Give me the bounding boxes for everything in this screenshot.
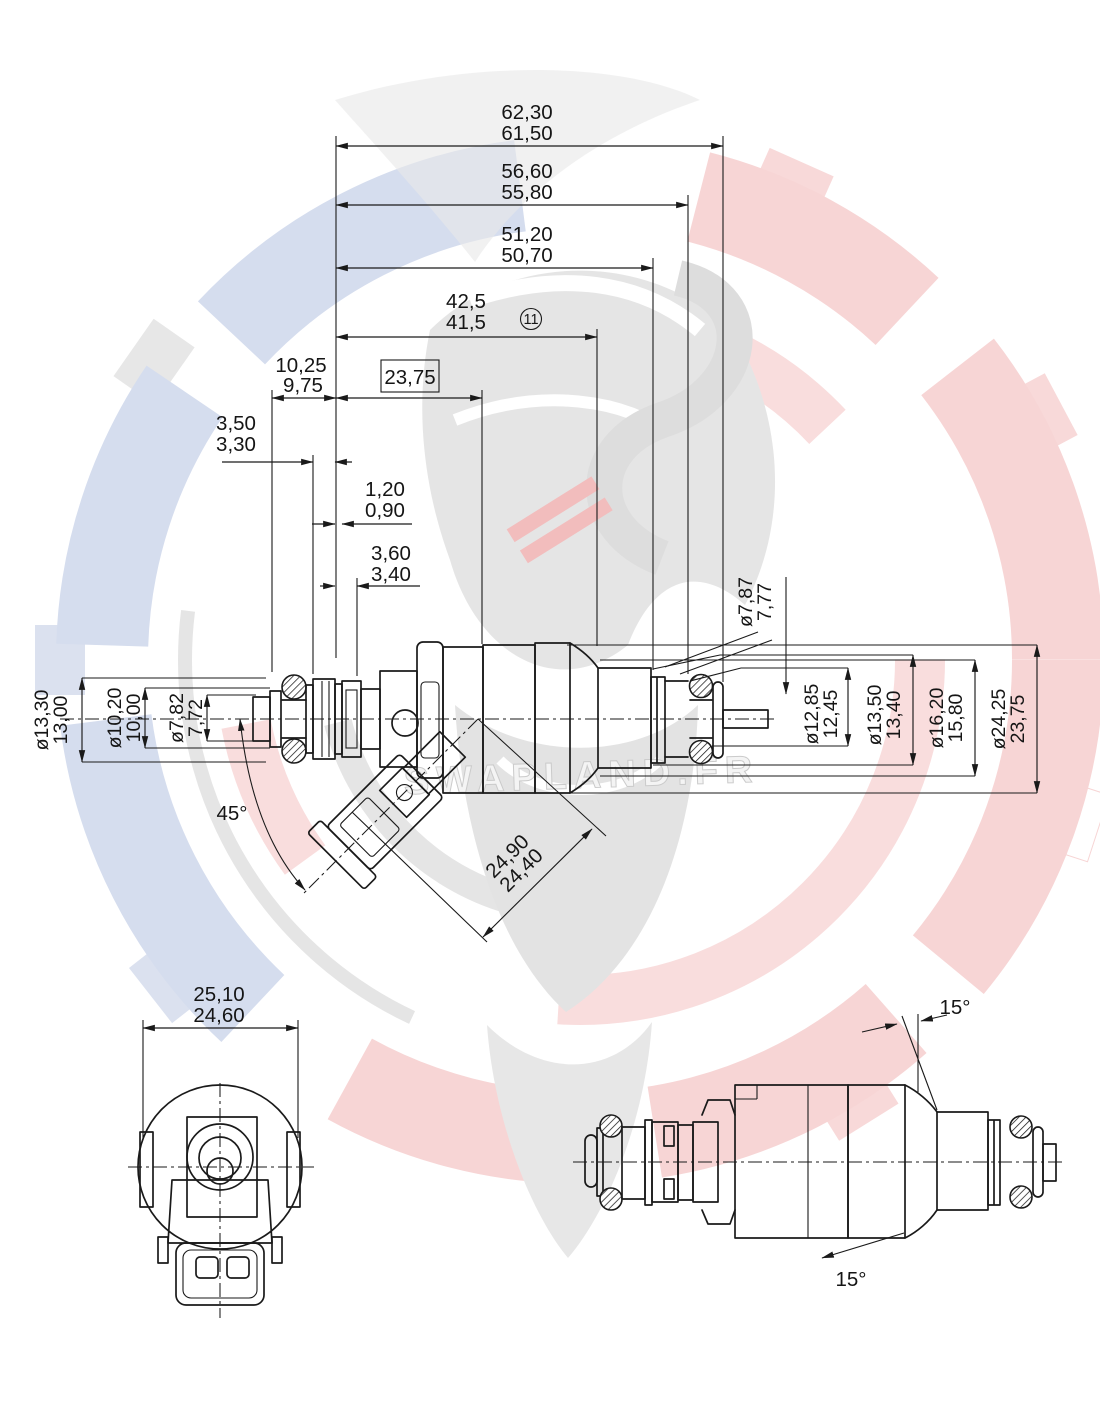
dim-angle-value: 45° — [216, 802, 247, 825]
o-ring-seal — [1010, 1186, 1032, 1208]
o-ring-seal — [282, 675, 306, 699]
dim-neck-min: 15,80 — [945, 693, 967, 742]
o-ring-seal — [1010, 1116, 1032, 1138]
o-ring-seal — [690, 741, 713, 764]
dim-groove-max: 3,60 — [371, 542, 411, 565]
dim-tip-min: 7,72 — [185, 699, 207, 737]
dim-groove-min: 3,40 — [371, 563, 411, 586]
dim-washer-min: 0,90 — [365, 499, 405, 522]
dim-collar-min: 13,40 — [883, 690, 905, 739]
o-ring-seal — [600, 1115, 622, 1137]
dim-washer-max: 1,20 — [365, 478, 405, 501]
dim-cap-min: 13,00 — [50, 695, 72, 744]
dim-len3-max: 51,20 — [501, 223, 552, 246]
dim-len2-max: 56,60 — [501, 160, 552, 183]
dim-len3-min: 50,70 — [501, 244, 552, 267]
dim-len4-min: 41,5 — [446, 311, 486, 334]
dim-frontw-min: 24,60 — [193, 1004, 244, 1027]
dim-overall-max: 62,30 — [501, 101, 552, 124]
dim-frontw-max: 25,10 — [193, 983, 244, 1006]
dim-mid-min: 10,00 — [123, 693, 145, 742]
dim-flange-min: 3,30 — [216, 433, 256, 456]
dim-len2-min: 55,80 — [501, 181, 552, 204]
technical-drawing-canvas: SWAPLAND.FR — [0, 0, 1100, 1422]
o-ring-seal — [282, 739, 306, 763]
dim-boxed-value: 23,75 — [384, 366, 435, 389]
dim-stem-min: 7,77 — [754, 583, 776, 621]
dim-flange-max: 3,50 — [216, 412, 256, 435]
dim-overall-min: 61,50 — [501, 122, 552, 145]
dim-taper-top-value: 15° — [939, 996, 970, 1019]
dim-taper-bot-value: 15° — [835, 1268, 866, 1291]
dim-body-min: 23,75 — [1007, 694, 1029, 743]
dim-seat-min: 12,45 — [820, 689, 842, 738]
dim-len4-max: 42,5 — [446, 290, 486, 313]
balloon-number: 11 — [523, 312, 538, 328]
o-ring-seal — [600, 1188, 622, 1210]
dim-len5-min: 9,75 — [283, 374, 323, 397]
